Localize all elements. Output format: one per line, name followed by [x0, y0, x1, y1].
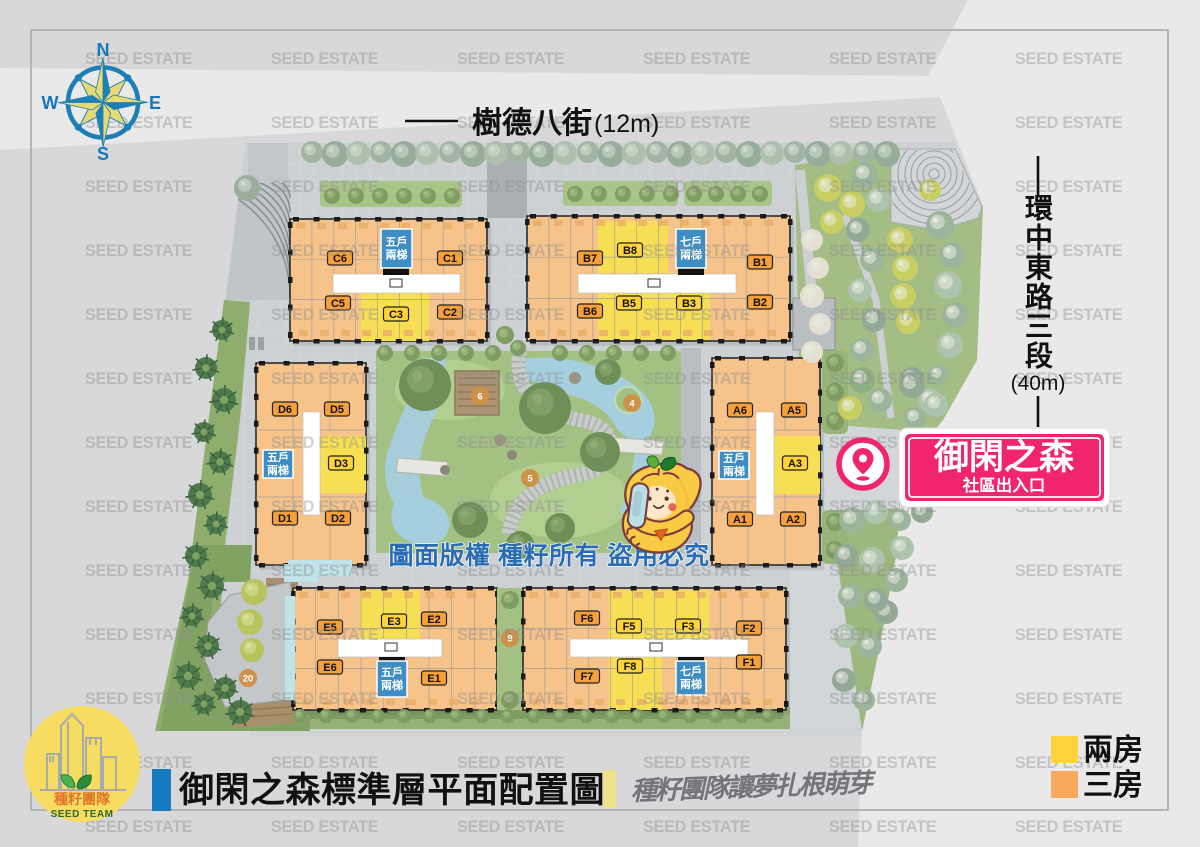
svg-text:D3: D3 — [334, 458, 348, 470]
svg-text:五戶: 五戶 — [381, 665, 403, 679]
svg-text:SEED ESTATE: SEED ESTATE — [271, 818, 379, 836]
svg-text:SEED ESTATE: SEED ESTATE — [643, 178, 751, 196]
svg-text:兩梯: 兩梯 — [267, 463, 289, 477]
svg-text:御閑之森標準層平面配置圖: 御閑之森標準層平面配置圖 — [178, 771, 605, 810]
svg-text:SEED ESTATE: SEED ESTATE — [271, 690, 379, 708]
svg-text:SEED ESTATE: SEED ESTATE — [271, 626, 379, 644]
svg-text:社區出入口: 社區出入口 — [962, 475, 1046, 495]
svg-text:SEED ESTATE: SEED ESTATE — [457, 690, 565, 708]
svg-text:SEED ESTATE: SEED ESTATE — [271, 114, 379, 132]
svg-text:SEED ESTATE: SEED ESTATE — [829, 242, 937, 260]
svg-text:SEED ESTATE: SEED ESTATE — [85, 690, 193, 708]
svg-text:S: S — [97, 144, 109, 164]
svg-text:SEED ESTATE: SEED ESTATE — [457, 626, 565, 644]
svg-text:SEED ESTATE: SEED ESTATE — [271, 178, 379, 196]
svg-text:F7: F7 — [581, 671, 594, 683]
svg-text:段: 段 — [1025, 340, 1053, 372]
svg-text:SEED ESTATE: SEED ESTATE — [85, 562, 193, 580]
svg-text:御閑之森: 御閑之森 — [933, 438, 1075, 477]
svg-text:SEED ESTATE: SEED ESTATE — [271, 434, 379, 452]
svg-text:A2: A2 — [786, 514, 800, 526]
svg-text:C1: C1 — [443, 253, 457, 265]
svg-text:F5: F5 — [623, 621, 636, 633]
svg-text:A6: A6 — [733, 405, 747, 417]
svg-text:SEED ESTATE: SEED ESTATE — [829, 562, 937, 580]
svg-text:SEED ESTATE: SEED ESTATE — [643, 818, 751, 836]
svg-text:SEED ESTATE: SEED ESTATE — [829, 626, 937, 644]
svg-text:SEED ESTATE: SEED ESTATE — [829, 178, 937, 196]
svg-text:E2: E2 — [427, 614, 440, 626]
svg-text:SEED ESTATE: SEED ESTATE — [1015, 562, 1123, 580]
svg-text:五戶: 五戶 — [386, 235, 408, 249]
svg-text:B6: B6 — [583, 306, 597, 318]
svg-text:樹德八街: 樹德八街 — [472, 107, 592, 140]
svg-text:中: 中 — [1025, 223, 1053, 254]
svg-text:F8: F8 — [624, 661, 637, 673]
svg-text:C3: C3 — [389, 309, 403, 321]
svg-text:五戶: 五戶 — [723, 451, 745, 465]
svg-text:SEED ESTATE: SEED ESTATE — [85, 178, 193, 196]
svg-text:W: W — [42, 93, 59, 113]
svg-text:三房: 三房 — [1083, 769, 1143, 802]
svg-text:SEED ESTATE: SEED ESTATE — [457, 818, 565, 836]
svg-text:SEED ESTATE: SEED ESTATE — [643, 434, 751, 452]
svg-text:B8: B8 — [623, 245, 637, 257]
svg-text:SEED ESTATE: SEED ESTATE — [643, 306, 751, 324]
svg-text:SEED ESTATE: SEED ESTATE — [85, 242, 193, 260]
svg-text:D6: D6 — [278, 404, 292, 416]
svg-text:SEED ESTATE: SEED ESTATE — [829, 818, 937, 836]
svg-text:兩梯: 兩梯 — [381, 678, 403, 692]
svg-text:SEED ESTATE: SEED ESTATE — [457, 306, 565, 324]
svg-text:SEED ESTATE: SEED ESTATE — [85, 818, 193, 836]
svg-text:SEED ESTATE: SEED ESTATE — [1015, 690, 1123, 708]
svg-text:SEED ESTATE: SEED ESTATE — [457, 178, 565, 196]
svg-text:SEED ESTATE: SEED ESTATE — [643, 242, 751, 260]
svg-text:B2: B2 — [753, 297, 767, 309]
svg-text:C2: C2 — [443, 307, 457, 319]
svg-text:E1: E1 — [427, 673, 440, 685]
svg-text:SEED ESTATE: SEED ESTATE — [271, 754, 379, 772]
svg-text:F6: F6 — [581, 613, 594, 625]
svg-text:路: 路 — [1025, 282, 1054, 313]
svg-text:SEED ESTATE: SEED ESTATE — [271, 50, 379, 68]
svg-text:SEED ESTATE: SEED ESTATE — [271, 498, 379, 516]
svg-text:三: 三 — [1025, 311, 1053, 342]
svg-text:SEED ESTATE: SEED ESTATE — [829, 690, 937, 708]
svg-text:SEED ESTATE: SEED ESTATE — [457, 370, 565, 388]
svg-text:SEED ESTATE: SEED ESTATE — [829, 114, 937, 132]
svg-text:SEED ESTATE: SEED ESTATE — [85, 306, 193, 324]
svg-text:環: 環 — [1025, 193, 1054, 224]
svg-text:SEED ESTATE: SEED ESTATE — [643, 754, 751, 772]
svg-text:兩梯: 兩梯 — [386, 248, 408, 262]
svg-text:SEED ESTATE: SEED ESTATE — [457, 50, 565, 68]
svg-text:4: 4 — [629, 399, 635, 410]
svg-text:E6: E6 — [323, 662, 336, 674]
svg-text:SEED ESTATE: SEED ESTATE — [457, 242, 565, 260]
svg-text:SEED ESTATE: SEED ESTATE — [85, 434, 193, 452]
svg-text:七戶: 七戶 — [680, 664, 702, 678]
svg-text:SEED ESTATE: SEED ESTATE — [271, 306, 379, 324]
svg-text:A3: A3 — [788, 458, 802, 470]
svg-text:SEED ESTATE: SEED ESTATE — [829, 370, 937, 388]
svg-text:SEED ESTATE: SEED ESTATE — [271, 562, 379, 580]
svg-text:D5: D5 — [330, 404, 344, 416]
svg-text:SEED ESTATE: SEED ESTATE — [85, 370, 193, 388]
svg-text:A5: A5 — [787, 405, 801, 417]
svg-text:SEED ESTATE: SEED ESTATE — [643, 690, 751, 708]
svg-text:SEED ESTATE: SEED ESTATE — [85, 626, 193, 644]
svg-text:SEED ESTATE: SEED ESTATE — [457, 434, 565, 452]
svg-text:SEED TEAM: SEED TEAM — [51, 809, 114, 820]
svg-text:SEED ESTATE: SEED ESTATE — [271, 242, 379, 260]
svg-text:6: 6 — [477, 392, 482, 403]
svg-text:SEED ESTATE: SEED ESTATE — [1015, 50, 1123, 68]
svg-text:E: E — [149, 93, 161, 113]
svg-text:N: N — [97, 40, 110, 60]
svg-text:五戶: 五戶 — [267, 450, 289, 464]
svg-text:SEED ESTATE: SEED ESTATE — [829, 50, 937, 68]
svg-text:F1: F1 — [743, 657, 756, 669]
svg-text:兩梯: 兩梯 — [723, 464, 745, 478]
svg-text:SEED ESTATE: SEED ESTATE — [457, 498, 565, 516]
svg-text:SEED ESTATE: SEED ESTATE — [643, 626, 751, 644]
svg-text:5: 5 — [527, 474, 533, 485]
svg-text:20: 20 — [243, 674, 254, 685]
svg-text:兩梯: 兩梯 — [680, 677, 702, 691]
svg-text:SEED ESTATE: SEED ESTATE — [271, 370, 379, 388]
svg-text:兩房: 兩房 — [1083, 734, 1143, 767]
svg-text:B7: B7 — [583, 253, 597, 265]
svg-text:SEED ESTATE: SEED ESTATE — [1015, 626, 1123, 644]
svg-text:SEED ESTATE: SEED ESTATE — [829, 306, 937, 324]
svg-text:東: 東 — [1025, 252, 1053, 283]
svg-text:B1: B1 — [753, 257, 767, 269]
svg-text:種籽團隊: 種籽團隊 — [54, 791, 111, 807]
svg-text:SEED ESTATE: SEED ESTATE — [457, 754, 565, 772]
svg-text:SEED ESTATE: SEED ESTATE — [643, 50, 751, 68]
svg-text:SEED ESTATE: SEED ESTATE — [643, 370, 751, 388]
svg-text:(12m): (12m) — [594, 110, 659, 138]
svg-text:(40m): (40m) — [1011, 372, 1066, 395]
svg-text:B5: B5 — [622, 298, 636, 310]
svg-text:SEED ESTATE: SEED ESTATE — [85, 498, 193, 516]
svg-text:E3: E3 — [387, 616, 400, 628]
svg-text:SEED ESTATE: SEED ESTATE — [1015, 818, 1123, 836]
svg-text:SEED ESTATE: SEED ESTATE — [1015, 114, 1123, 132]
